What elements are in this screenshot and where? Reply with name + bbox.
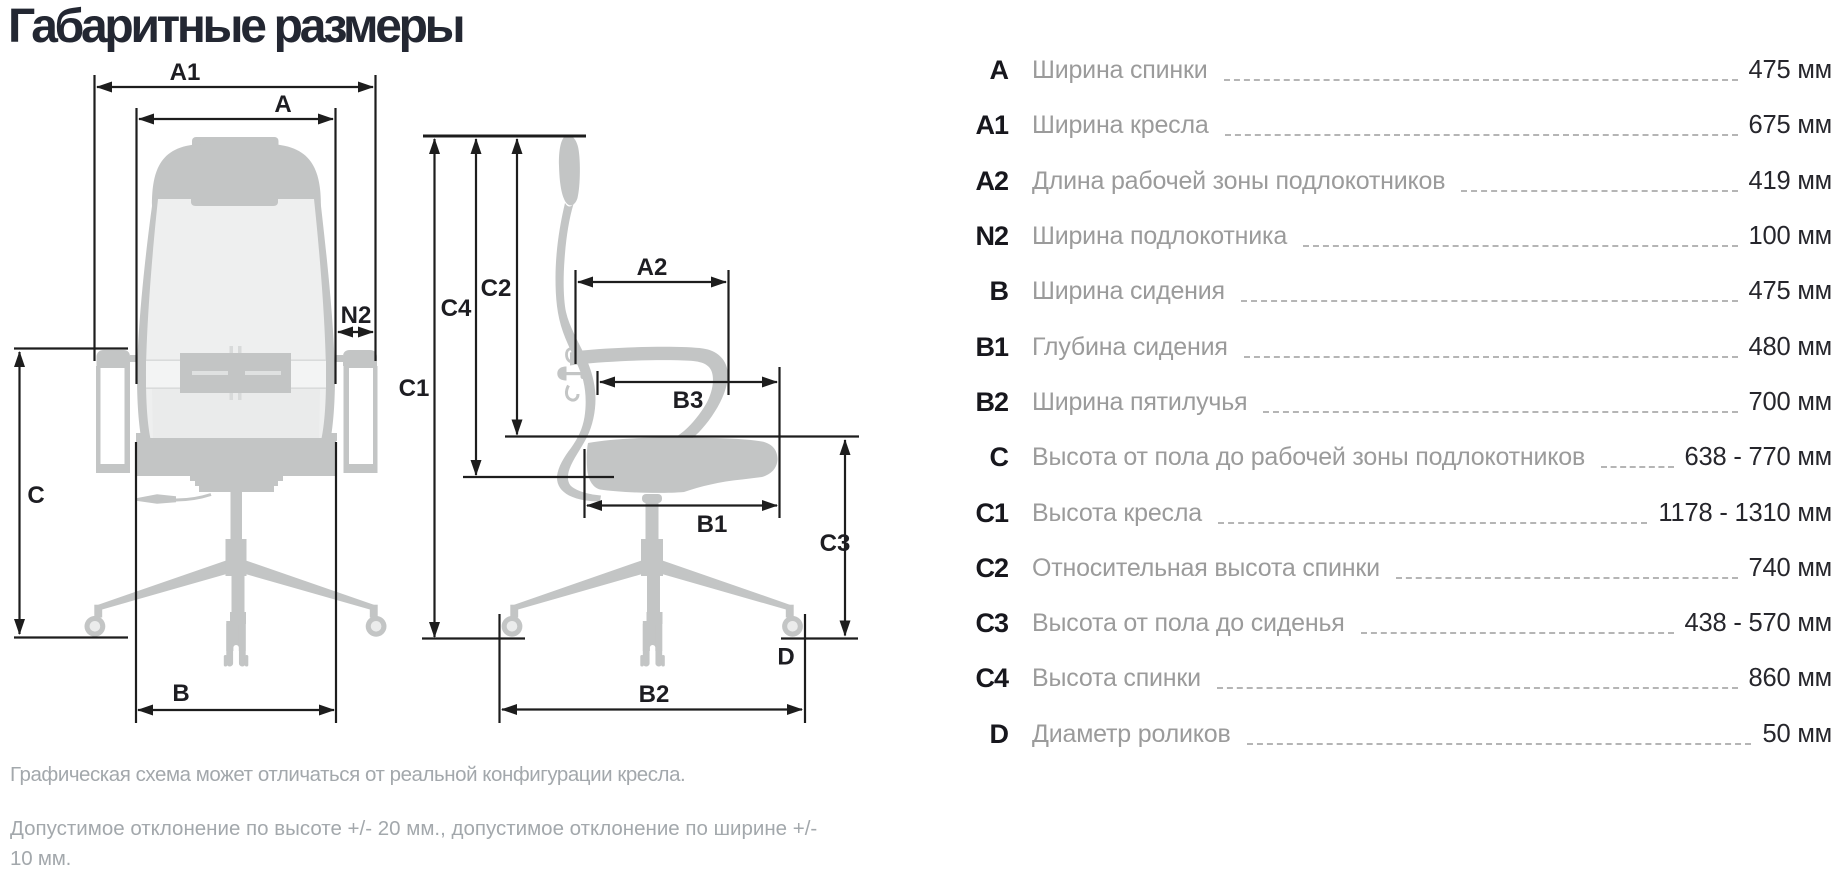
svg-text:B2: B2: [639, 681, 670, 708]
svg-text:A1: A1: [170, 59, 201, 86]
svg-text:C1: C1: [399, 375, 430, 402]
svg-text:D: D: [777, 644, 794, 671]
svg-text:N2: N2: [341, 302, 372, 329]
svg-text:A: A: [274, 91, 291, 118]
svg-text:B: B: [172, 680, 189, 707]
svg-text:C: C: [27, 482, 44, 509]
svg-text:C4: C4: [441, 295, 472, 322]
svg-text:A2: A2: [637, 254, 668, 281]
svg-text:C2: C2: [481, 275, 512, 302]
svg-text:B1: B1: [697, 511, 728, 538]
svg-text:C3: C3: [820, 530, 851, 557]
svg-text:B3: B3: [673, 387, 704, 414]
